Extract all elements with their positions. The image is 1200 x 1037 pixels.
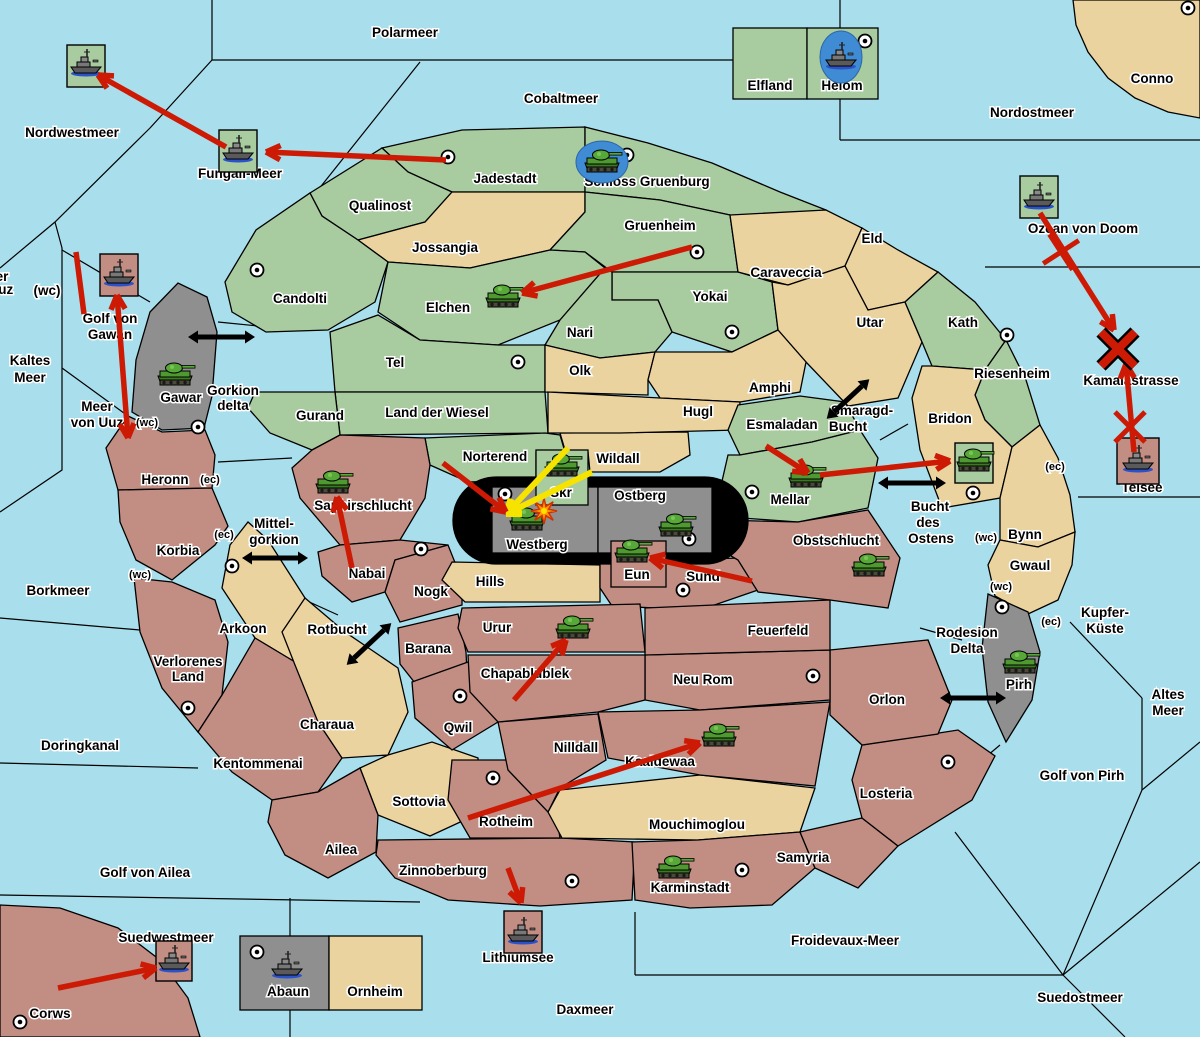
supply-center-conno xyxy=(1182,2,1195,15)
label-coast-gwaul: (ec) xyxy=(1041,616,1061,628)
label-sea-kupfer-kueste: Kupfer- xyxy=(1081,605,1129,620)
label-sea-smaragd-bucht: Bucht xyxy=(829,419,868,434)
label-sea-suedostmeer: Suedostmeer xyxy=(1037,990,1123,1005)
label-sea-nordostmeer: Nordostmeer xyxy=(990,105,1075,120)
label-sea-mittel-gorkion: gorkion xyxy=(249,532,299,547)
label-region-karminstadt: Karminstadt xyxy=(651,880,730,895)
label-sea-meer-von-uuz: von Uuz xyxy=(71,415,124,430)
label-sea-rotbucht: Rotbucht xyxy=(307,622,367,637)
label-region-kentommenai: Kentommenai xyxy=(213,756,302,771)
label-region-rotheim: Rotheim xyxy=(479,814,533,829)
label-region-gwaul: Gwaul xyxy=(1010,558,1051,573)
label-region-olk: Olk xyxy=(569,363,591,378)
label-region-verlorenes-land: Verlorenes xyxy=(153,654,222,669)
label-sea-gorkion-delta: Gorkion xyxy=(207,383,259,398)
label-region-obstschlucht: Obstschlucht xyxy=(793,533,880,548)
label-region-yokai: Yokai xyxy=(692,289,727,304)
supply-center-arkoon xyxy=(226,560,239,573)
label-region-gruenheim: Gruenheim xyxy=(624,218,695,233)
label-sea-kaltes-meer: Kaltes xyxy=(10,353,51,368)
label-coast-korbia: (ec) xyxy=(214,529,234,541)
label-region-westberg: Westberg xyxy=(506,537,567,552)
label-region-ornheim: Ornheim xyxy=(347,984,403,999)
label-sea-gorkion-delta: delta xyxy=(217,398,249,413)
label-region-qwil: Qwil xyxy=(444,720,473,735)
label-coast-heronn: (ec) xyxy=(200,474,220,486)
supply-center-losteria xyxy=(942,756,955,769)
label-region-samyria: Samyria xyxy=(777,850,830,865)
label-sea-golf-von-gawan: Golf von xyxy=(83,311,138,326)
supply-center-qwil xyxy=(454,690,467,703)
label-sea-golf-von-ailea: Golf von Ailea xyxy=(100,865,191,880)
label-sea-froidevaux-meer: Froidevaux-Meer xyxy=(791,933,900,948)
label-region-corws: Corws xyxy=(29,1006,70,1021)
label-region-verlorenes-land: Land xyxy=(172,669,204,684)
label-region-bridon: Bridon xyxy=(928,411,972,426)
label-region-nabai: Nabai xyxy=(349,566,386,581)
label-region-jadestadt: Jadestadt xyxy=(473,171,537,186)
supply-center-candolti xyxy=(251,264,264,277)
supply-center-gruenheim xyxy=(691,246,704,259)
label-sea-cobaltmeer: Cobaltmeer xyxy=(524,91,599,106)
label-region-charaua: Charaua xyxy=(300,717,355,732)
label-region-hugl: Hugl xyxy=(683,404,713,419)
supply-center-abaun xyxy=(251,946,264,959)
label-region-riesenheim: Riesenheim xyxy=(974,366,1050,381)
label-region-feuerfeld: Feuerfeld xyxy=(748,623,809,638)
label-region-esmaladan: Esmaladan xyxy=(746,417,817,432)
label-region-eld: Eld xyxy=(861,231,882,246)
label-region-mouchimoglou: Mouchimoglou xyxy=(649,817,745,832)
label-region-nari: Nari xyxy=(567,325,593,340)
label-sea-kaltes-meer: Meer xyxy=(14,370,46,385)
label-region-abaun: Abaun xyxy=(267,984,309,999)
supply-center-neu-rom xyxy=(807,670,820,683)
supply-center-sund xyxy=(677,584,690,597)
supply-center-pirh xyxy=(996,601,1009,614)
label-region-nogk: Nogk xyxy=(414,584,448,599)
label-region-amphi: Amphi xyxy=(749,380,791,395)
label-region-caraveccia: Caraveccia xyxy=(750,265,822,280)
label-region-bynn: Bynn xyxy=(1008,527,1042,542)
label-region-tel: Tel xyxy=(386,355,405,370)
label-region-eun: Eun xyxy=(624,567,650,582)
supply-center-zinnoberburg xyxy=(566,875,579,888)
label-region-ailea: Ailea xyxy=(325,842,358,857)
game-map-stage: JadestadtSchloss GruenburgQualinostJossa… xyxy=(0,0,1200,1037)
label-region-orlon: Orlon xyxy=(869,692,905,707)
label-sea-golf-von-gawan: Gawan xyxy=(88,327,132,342)
label-region-heronn: Heronn xyxy=(141,472,188,487)
label-region-urur: Urur xyxy=(483,620,512,635)
label-sea-daxmeer: Daxmeer xyxy=(556,1002,614,1017)
label-region-conno: Conno xyxy=(1131,71,1174,86)
supply-center-bridon xyxy=(967,487,980,500)
label-region-candolti: Candolti xyxy=(273,291,327,306)
label-region-utar: Utar xyxy=(856,315,884,330)
supply-center-tel xyxy=(512,356,525,369)
label-region-gawar: Gawar xyxy=(160,390,202,405)
label-region-elchen: Elchen xyxy=(426,300,470,315)
supply-center-karminstadt xyxy=(736,864,749,877)
label-region-hills: Hills xyxy=(476,574,505,589)
label-region-jossangia: Jossangia xyxy=(412,240,479,255)
label-coast-korbia: (wc) xyxy=(129,569,151,581)
supply-center-mellar xyxy=(746,486,759,499)
label-region-zinnoberburg: Zinnoberburg xyxy=(399,863,487,878)
label-region-elfland: Elfland xyxy=(747,78,792,93)
label-region-saphirschlucht: Saphirschlucht xyxy=(314,498,412,513)
label-region-arkoon: Arkoon xyxy=(219,621,266,636)
label-sea-kupfer-kueste: Küste xyxy=(1086,621,1124,636)
label-sea-edge-cut-label: (wc) xyxy=(34,283,61,298)
supply-center-verlorenes-land xyxy=(182,702,195,715)
supply-center-rotheim xyxy=(487,772,500,785)
label-region-gurand: Gurand xyxy=(296,408,344,423)
label-sea-nordwestmeer: Nordwestmeer xyxy=(25,125,120,140)
label-sea-bucht-des-ostens: Bucht xyxy=(911,499,950,514)
label-sea-borkmeer: Borkmeer xyxy=(26,583,90,598)
label-region-korbia: Korbia xyxy=(157,543,200,558)
label-region-chapablublek: Chapablublek xyxy=(481,666,570,681)
label-sea-altes-meer: Altes xyxy=(1151,687,1184,702)
label-sea-golf-von-pirh: Golf von Pirh xyxy=(1040,768,1125,783)
supply-center-corws xyxy=(14,1016,27,1029)
label-coast-heronn: (wc) xyxy=(136,417,158,429)
label-region-norterend: Norterend xyxy=(463,449,528,464)
label-region-pirh: Pirh xyxy=(1006,677,1032,692)
label-sea-altes-meer: Meer xyxy=(1152,703,1184,718)
label-region-wildall: Wildall xyxy=(596,451,639,466)
region-hills[interactable] xyxy=(442,562,600,602)
supply-center-nogk xyxy=(415,543,428,556)
label-sea-edge-cut-label: Juz xyxy=(0,282,13,297)
label-coast-bynn: (ec) xyxy=(1045,461,1065,473)
label-region-qualinost: Qualinost xyxy=(349,198,412,213)
label-sea-rodesion-delta: Delta xyxy=(950,641,984,656)
label-region-neu-rom: Neu Rom xyxy=(673,672,732,687)
label-coast-gwaul: (wc) xyxy=(990,581,1012,593)
supply-center-yokai xyxy=(726,326,739,339)
supply-center-gawar xyxy=(192,421,205,434)
label-sea-mittel-gorkion: Mittel- xyxy=(254,516,294,531)
label-region-nilldall: Nilldall xyxy=(554,740,598,755)
label-sea-rodesion-delta: Rodesion xyxy=(936,625,998,640)
label-region-losteria: Losteria xyxy=(860,786,913,801)
label-sea-bucht-des-ostens: Ostens xyxy=(908,531,954,546)
label-sea-doringkanal: Doringkanal xyxy=(41,738,119,753)
strategy-game-map: JadestadtSchloss GruenburgQualinostJossa… xyxy=(0,0,1200,1037)
label-coast-bynn: (wc) xyxy=(975,532,997,544)
label-sea-polarmeer: Polarmeer xyxy=(372,25,439,40)
label-sea-meer-von-uuz: Meer xyxy=(81,399,113,414)
label-region-ostberg: Ostberg xyxy=(614,488,666,503)
supply-center-kath xyxy=(1001,329,1014,342)
label-sea-bucht-des-ostens: des xyxy=(916,515,939,530)
label-region-kath: Kath xyxy=(948,315,978,330)
label-region-mellar: Mellar xyxy=(770,492,810,507)
label-region-land-der-wiesel: Land der Wiesel xyxy=(385,405,488,420)
label-region-sottovia: Sottovia xyxy=(392,794,446,809)
label-region-barana: Barana xyxy=(405,641,451,656)
